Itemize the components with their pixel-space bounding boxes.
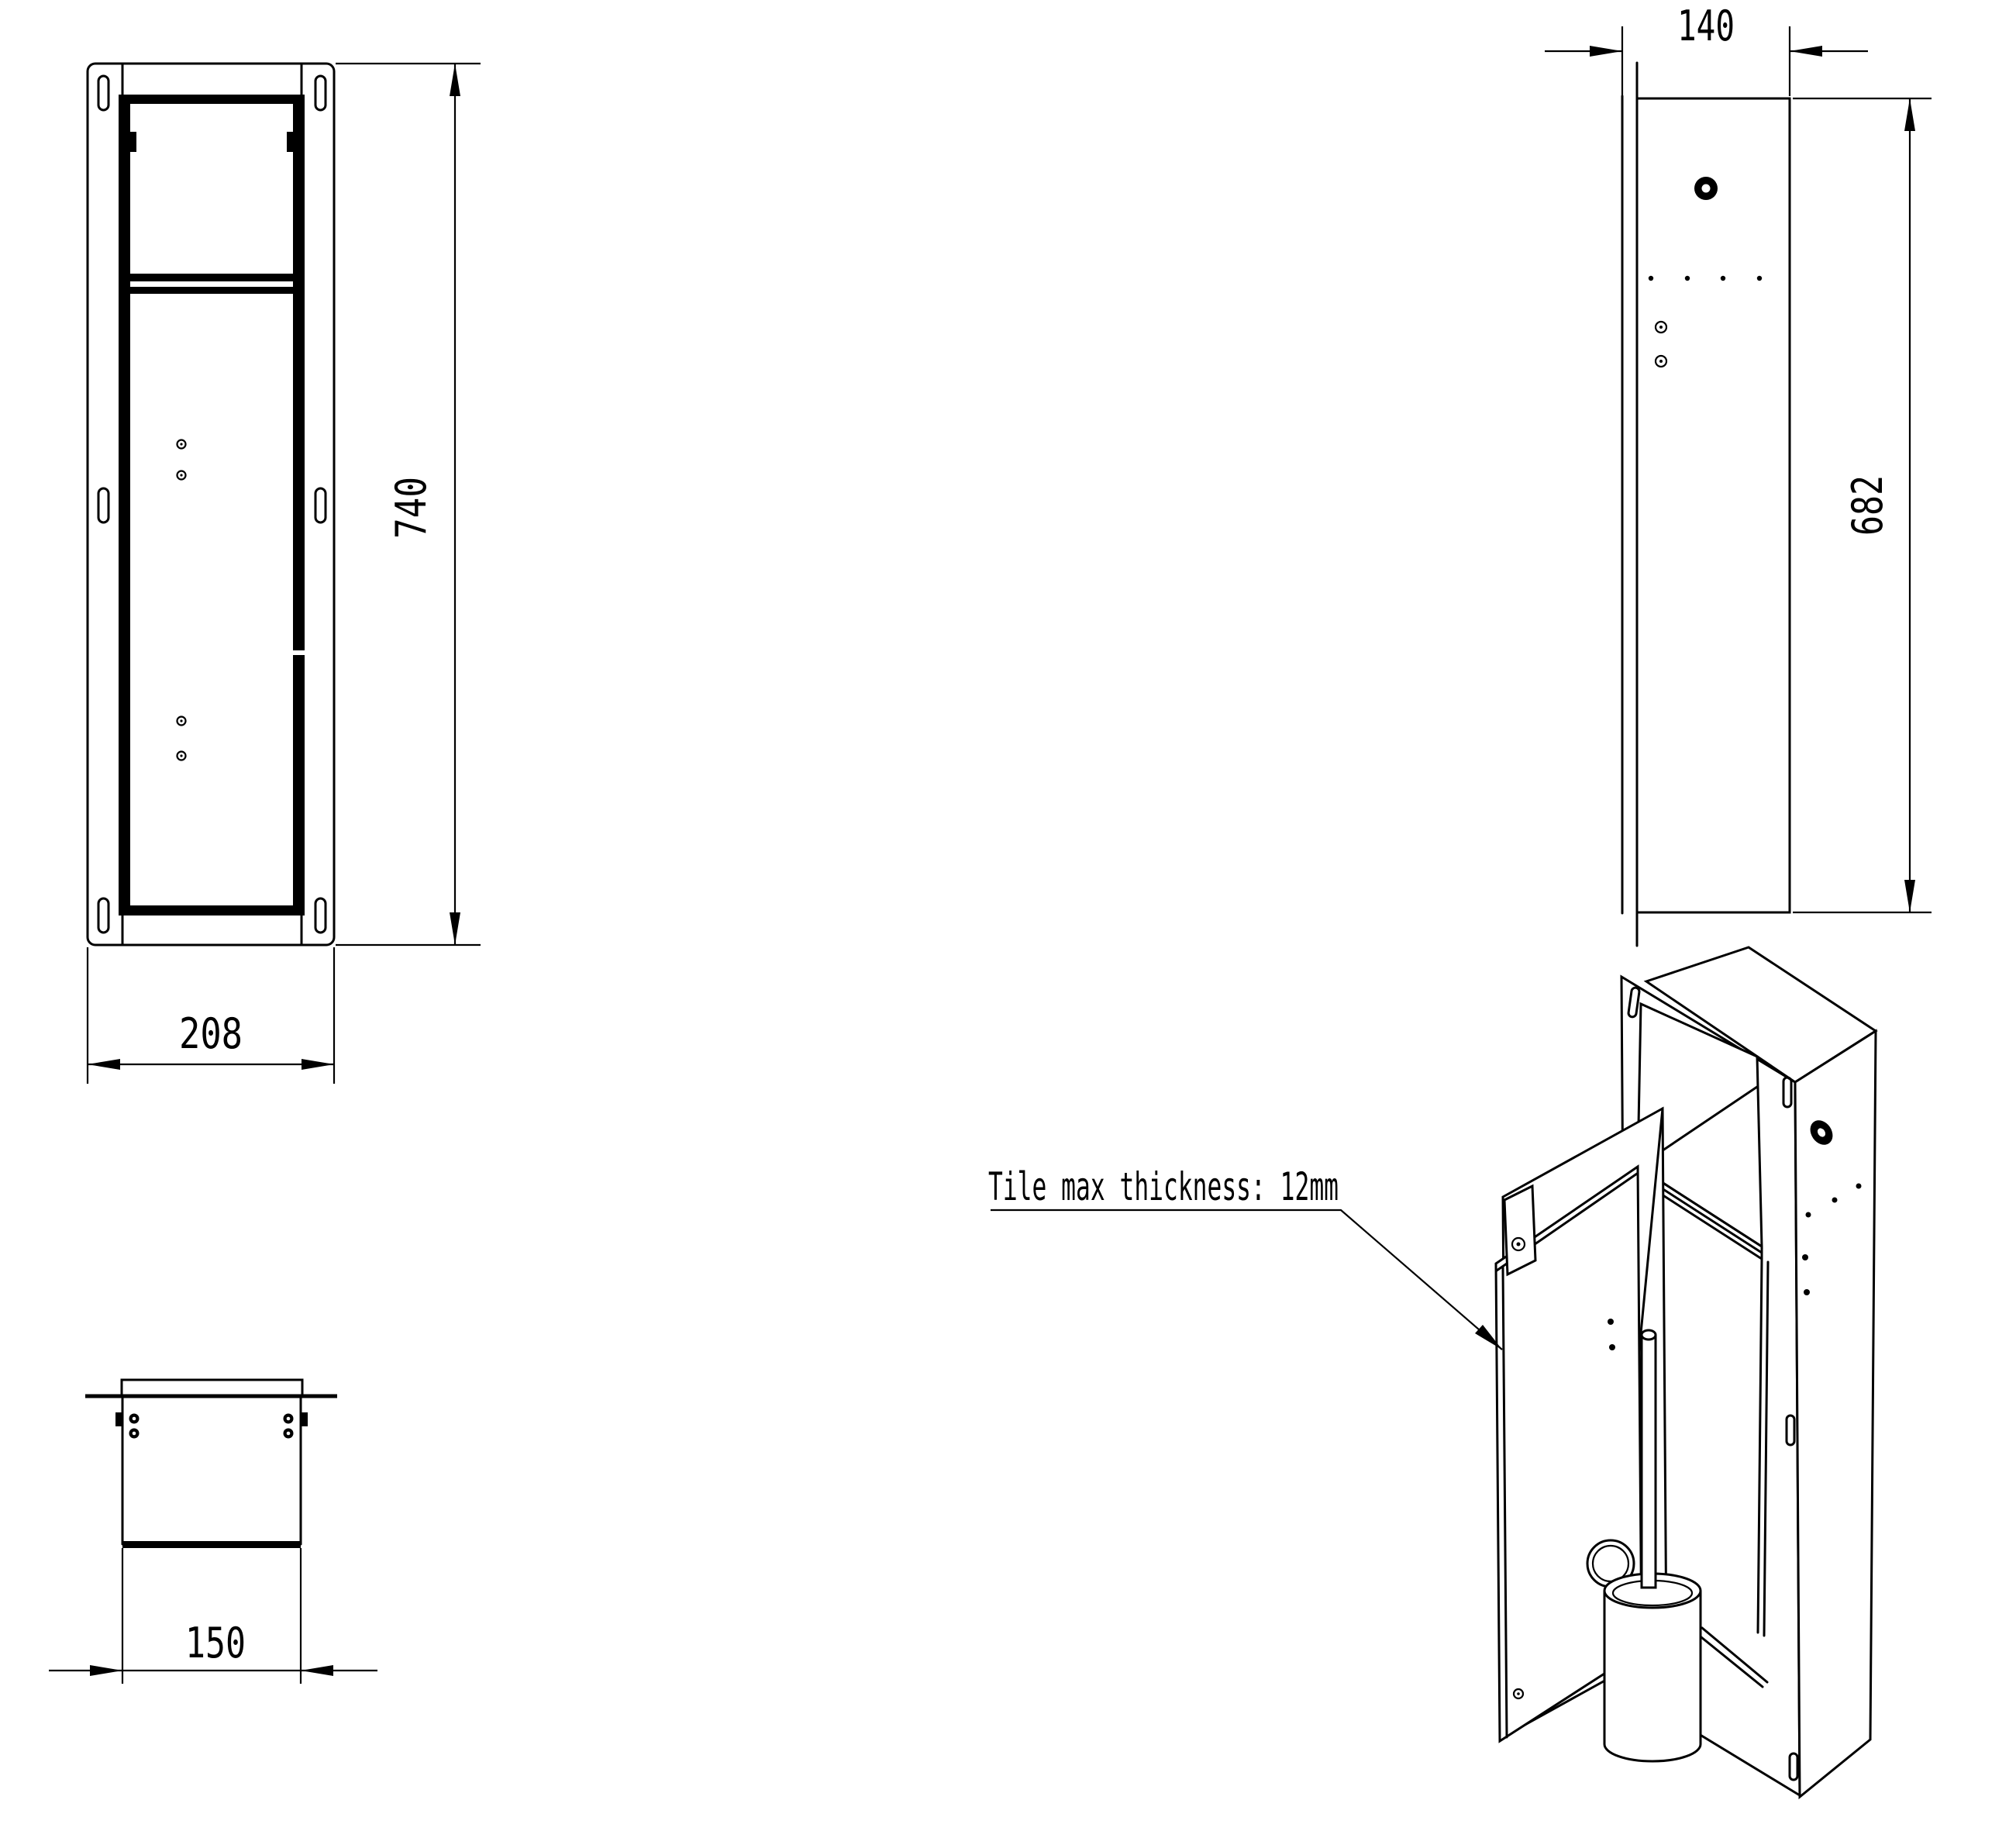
top-screws [129, 1414, 294, 1439]
side-body [1637, 98, 1790, 912]
iso-right-face [1795, 1031, 1876, 1797]
dim-140: 140 [1677, 2, 1735, 50]
side-tab-left [115, 1412, 122, 1426]
top-view [85, 1380, 337, 1548]
front-view [88, 64, 334, 945]
body-back-wall [122, 1541, 301, 1548]
side-depth-dimension: 140 [1545, 2, 1868, 96]
dim-150: 150 [185, 1619, 246, 1667]
side-dot-row [1649, 276, 1762, 281]
front-height-dimension: 740 [336, 64, 481, 945]
dim-208: 208 [179, 1009, 243, 1058]
latch-notch [293, 650, 305, 655]
dim-682: 682 [1843, 475, 1892, 536]
drawing-sheet: 740 208 140 [0, 0, 2016, 1831]
front-width-dimension: 208 [88, 947, 334, 1084]
top-plate [122, 1380, 302, 1396]
tile-annotation: Tile max thickness: 12mm [988, 1164, 1502, 1350]
divider-bar [119, 287, 305, 294]
frame-top-bar [119, 95, 305, 104]
roll-tab-left [130, 132, 136, 152]
door-dot [1608, 1319, 1614, 1325]
roll-tab-right [287, 132, 293, 152]
iso-view [1496, 947, 1876, 1797]
mounting-slots [98, 76, 326, 933]
side-height-dimension: 682 [1793, 98, 1932, 912]
door-dot [1609, 1344, 1615, 1350]
brush-handle [1642, 1335, 1656, 1588]
frame-right-bar [293, 95, 305, 915]
top-width-dimension: 150 [49, 1548, 377, 1684]
side-tab-right [301, 1412, 308, 1426]
side-screws [1656, 322, 1666, 367]
leader-line [991, 1210, 1502, 1350]
side-view [1622, 63, 1790, 946]
door-hinge-bracket [1504, 1186, 1535, 1274]
brush-cup [1604, 1591, 1701, 1761]
shelf-edge [126, 274, 298, 281]
frame-bottom-bar [119, 905, 305, 915]
dim-740: 740 [387, 477, 436, 539]
tile-note-text: Tile max thickness: 12mm [988, 1164, 1339, 1209]
brush-handle-cap [1642, 1330, 1656, 1340]
frame-left-bar [119, 95, 130, 915]
door-holes [177, 440, 186, 760]
